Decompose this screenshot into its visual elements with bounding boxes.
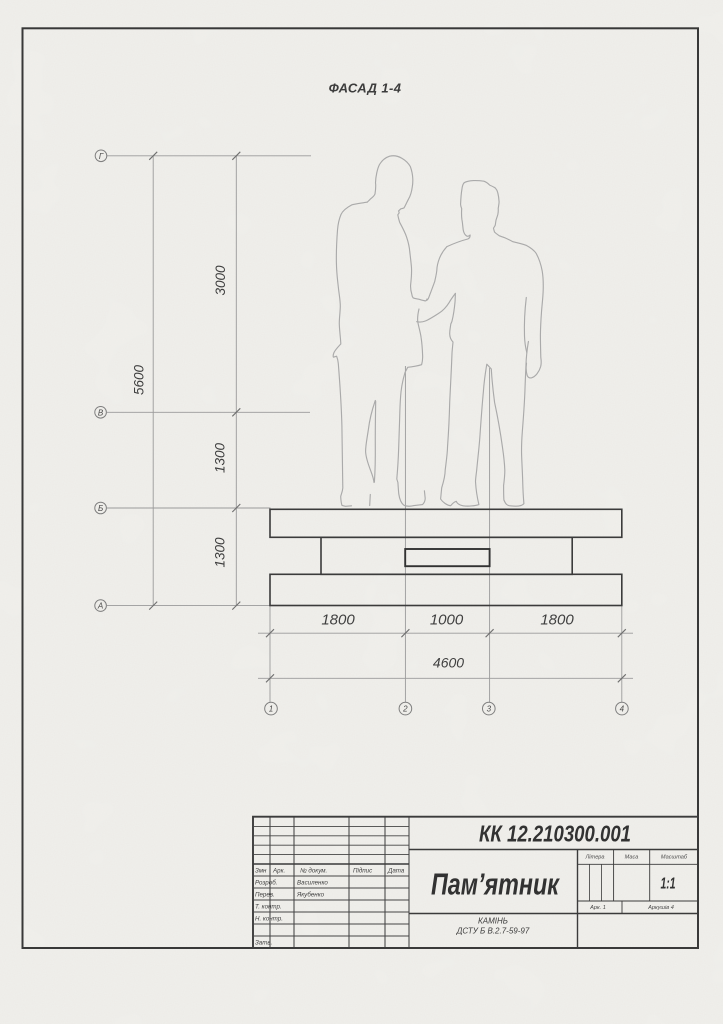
svg-text:Пам’ятник: Пам’ятник bbox=[431, 867, 560, 902]
svg-text:4600: 4600 bbox=[433, 655, 464, 671]
svg-text:Аркушів 4: Аркушів 4 bbox=[647, 905, 674, 911]
svg-text:Арк. 1: Арк. 1 bbox=[589, 905, 606, 911]
svg-text:Арк.: Арк. bbox=[272, 868, 285, 875]
svg-text:1800: 1800 bbox=[321, 612, 355, 629]
svg-text:Масштаб: Масштаб bbox=[661, 855, 688, 861]
svg-text:ФАСАД 1-4: ФАСАД 1-4 bbox=[329, 81, 402, 96]
svg-text:Літера: Літера bbox=[584, 855, 604, 861]
svg-text:3000: 3000 bbox=[213, 265, 228, 296]
svg-text:1000: 1000 bbox=[430, 612, 464, 629]
svg-text:2: 2 bbox=[402, 705, 408, 714]
svg-text:3: 3 bbox=[487, 705, 492, 714]
svg-text:1300: 1300 bbox=[213, 442, 228, 473]
svg-text:Г: Г bbox=[99, 152, 104, 161]
svg-text:Розроб.: Розроб. bbox=[255, 880, 277, 887]
svg-text:Підпис: Підпис bbox=[353, 868, 373, 875]
svg-text:Дата: Дата bbox=[387, 868, 405, 875]
svg-text:5600: 5600 bbox=[132, 364, 147, 395]
svg-text:В: В bbox=[98, 408, 104, 417]
svg-text:1800: 1800 bbox=[540, 612, 574, 629]
svg-text:4: 4 bbox=[620, 705, 625, 714]
svg-text:Т. контр.: Т. контр. bbox=[255, 904, 282, 911]
svg-text:1300: 1300 bbox=[213, 537, 228, 568]
svg-text:А: А bbox=[97, 602, 103, 611]
svg-text:Маса: Маса bbox=[625, 855, 639, 861]
svg-text:ДСТУ Б В.2.7-59-97: ДСТУ Б В.2.7-59-97 bbox=[456, 927, 530, 936]
svg-text:Перев.: Перев. bbox=[255, 892, 275, 899]
svg-text:КАМІНЬ: КАМІНЬ bbox=[478, 917, 508, 926]
svg-text:КК 12.210300.001: КК 12.210300.001 bbox=[479, 821, 631, 847]
svg-text:Н. контр.: Н. контр. bbox=[255, 916, 283, 923]
svg-text:Затв.: Затв. bbox=[255, 940, 272, 947]
svg-text:Якубенко: Якубенко bbox=[296, 892, 325, 899]
svg-text:Б: Б bbox=[98, 504, 103, 513]
svg-text:1:1: 1:1 bbox=[661, 876, 676, 893]
svg-text:Василенко: Василенко bbox=[297, 880, 328, 887]
svg-text:№ докум.: № докум. bbox=[300, 868, 327, 875]
svg-text:Змн: Змн bbox=[255, 868, 267, 875]
svg-text:1: 1 bbox=[269, 705, 273, 714]
